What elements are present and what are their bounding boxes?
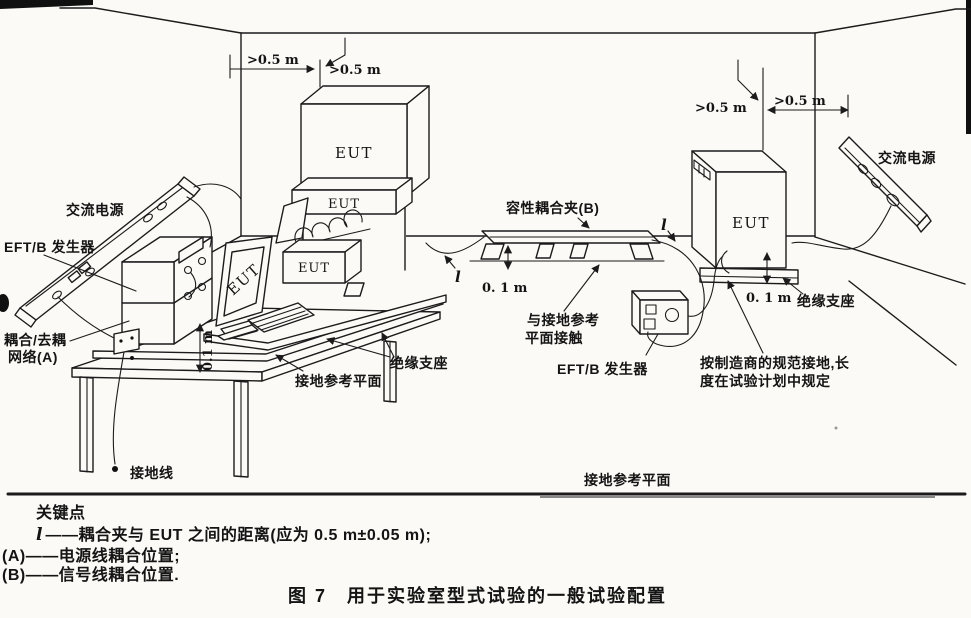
- label-l-left: l: [455, 268, 461, 286]
- label-cdn-line1: 耦合/去耦: [4, 332, 66, 348]
- label-mfr-ground-line1: 按制造商的规范接地,长: [700, 355, 850, 371]
- dim-01m-right-label: 0. 1 m: [746, 291, 792, 306]
- clamp-foot: [570, 244, 588, 258]
- eut-bar-label: EUT: [328, 197, 360, 212]
- dim-label-wall-left: >0.5 m: [247, 53, 299, 68]
- label-contact-line1: 与接地参考: [527, 312, 600, 328]
- dimension-left: >0.5 m >0.5 m: [230, 38, 381, 87]
- dimension-table-height: 0.1 m: [200, 324, 216, 372]
- note-item-b: (B)——信号线耦合位置.: [2, 565, 179, 584]
- clamp-foot: [630, 244, 653, 259]
- label-ground-wire: 接地线: [130, 465, 174, 481]
- label-cdn-line2: 网络(A): [8, 349, 58, 365]
- dim-01m-table-label: 0.1 m: [201, 330, 216, 371]
- label-ac-power-left: 交流电源: [66, 202, 124, 218]
- dim-01m-clamp-label: 0. 1 m: [482, 281, 528, 296]
- capacitive-coupling-clamp: [470, 231, 664, 261]
- eut-cabinet-label: EUT: [335, 144, 373, 162]
- label-eftb-generator-left: EFT/B 发生器: [4, 239, 95, 255]
- eut-bar-top: [292, 178, 412, 190]
- label-ac-power-right: 交流电源: [878, 150, 936, 166]
- note-b-prefix: (B): [2, 567, 26, 584]
- note-item-l: l——耦合夹与 EUT 之间的距离(应为 0.5 m±0.05 m);: [36, 525, 431, 545]
- note-l-text: ——耦合夹与 EUT 之间的距离(应为 0.5 m±0.05 m);: [45, 525, 431, 544]
- clamp-foot: [481, 244, 504, 259]
- label-l-right: l: [661, 216, 667, 234]
- ground-wire-terminal: [112, 466, 118, 472]
- notes-title: 关键点: [36, 503, 86, 522]
- eftb-generator-box: [632, 291, 688, 334]
- floor-plane-edge-right: [849, 281, 956, 365]
- label-ground-plane-table: 接地参考平面: [295, 373, 382, 389]
- test-setup-diagram: >0.5 m >0.5 m >0.5 m >0.5 m EUT: [0, 0, 971, 618]
- ceiling-edge-right: [815, 9, 971, 33]
- dim-label-wall-right: >0.5 m: [774, 94, 826, 109]
- scanned-figure-page: >0.5 m >0.5 m >0.5 m >0.5 m EUT: [0, 0, 971, 618]
- floor-corner-right: [815, 237, 965, 284]
- eut-right-label: EUT: [732, 214, 770, 232]
- cable-table-to-clamp: [426, 237, 484, 253]
- eut-printer-label: EUT: [298, 261, 330, 276]
- support-block: [344, 283, 364, 296]
- coupling-point-a-bracket: [114, 329, 139, 354]
- dim-label-ceiling-right: >0.5 m: [695, 101, 747, 116]
- label-eftb-generator-floor: EFT/B 发生器: [557, 361, 648, 377]
- clamp-foot: [536, 244, 554, 258]
- dimension-right: >0.5 m >0.5 m: [695, 60, 848, 150]
- note-item-a: (A)——电源线耦合位置;: [2, 546, 180, 565]
- label-mfr-ground-line2: 度在试验计划中规定: [700, 373, 831, 389]
- cable-strip-to-cdn: [58, 297, 114, 338]
- ceiling-edge-left: [60, 8, 241, 33]
- note-l-symbol: l: [36, 525, 43, 545]
- eut-right: EUT: [692, 151, 798, 284]
- dim-label-ceiling-left: >0.5 m: [329, 63, 381, 78]
- figure-notes: 关键点 l——耦合夹与 EUT 之间的距离(应为 0.5 m±0.05 m); …: [2, 494, 965, 606]
- note-a-text: ——电源线耦合位置;: [26, 546, 180, 565]
- cable-strip-to-wall: [194, 184, 241, 199]
- label-insulating-support-right: 绝缘支座: [797, 293, 855, 309]
- label-ground-plane-floor: 接地参考平面: [584, 472, 671, 488]
- note-a-prefix: (A): [2, 548, 26, 565]
- cable-strip-to-eut-right: [792, 206, 891, 249]
- label-contact-line2: 平面接触: [525, 330, 583, 346]
- note-b-text: ——信号线耦合位置.: [26, 565, 179, 584]
- label-capacitive-clamp: 容性耦合夹(B): [505, 200, 599, 216]
- label-insulating-support-table: 绝缘支座: [390, 355, 448, 371]
- figure-caption: 图 7 用于实验室型式试验的一般试验配置: [288, 585, 667, 606]
